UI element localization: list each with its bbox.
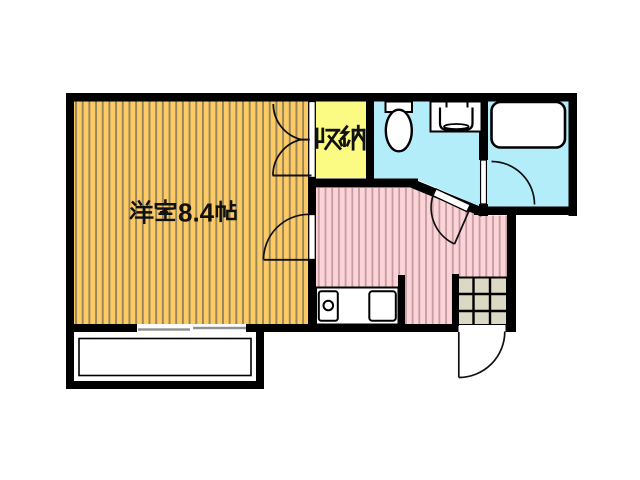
svg-text:8.4: 8.4 xyxy=(178,198,215,228)
